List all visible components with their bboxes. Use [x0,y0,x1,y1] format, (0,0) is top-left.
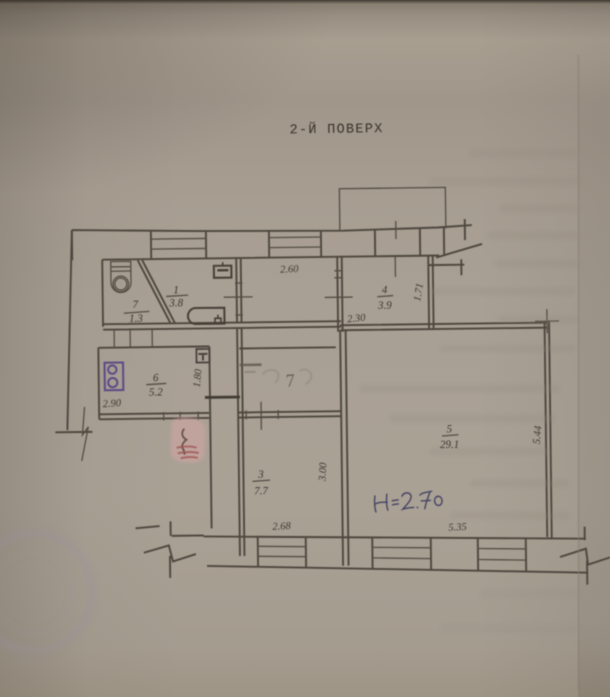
svg-text:2-Й ПОВЕРХ: 2-Й ПОВЕРХ [290,121,384,138]
svg-text:3.9: 3.9 [377,300,392,312]
svg-text:2.90: 2.90 [102,398,122,410]
svg-text:2.68: 2.68 [272,521,292,533]
svg-text:2.30: 2.30 [347,313,367,326]
svg-text:2.60: 2.60 [280,264,300,276]
svg-text:4: 4 [382,284,388,296]
svg-text:1: 1 [173,284,179,296]
svg-text:3.00: 3.00 [317,462,329,483]
svg-text:1.71: 1.71 [412,282,426,302]
svg-text:5.2: 5.2 [149,386,163,398]
svg-text:7: 7 [285,370,296,391]
svg-text:3.8: 3.8 [168,297,183,309]
svg-text:3: 3 [257,469,264,481]
svg-text:7: 7 [132,299,138,311]
svg-text:7.7: 7.7 [254,485,268,497]
svg-text:1.80: 1.80 [192,368,205,388]
svg-text:5.44: 5.44 [532,425,545,445]
svg-text:5.35: 5.35 [448,522,467,534]
svg-text:1.3: 1.3 [129,313,143,325]
svg-text:5: 5 [447,423,453,435]
svg-text:6: 6 [153,372,159,384]
